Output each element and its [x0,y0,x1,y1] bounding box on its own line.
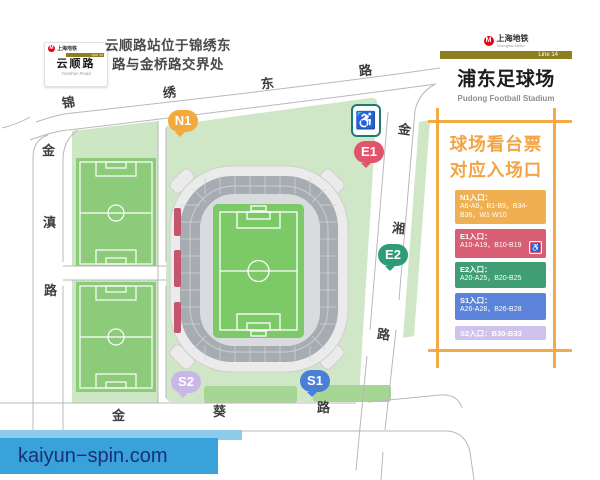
road-label-jinxiu-4: 路 [358,63,373,78]
legend-entry-s2: S2入口：B30-B33 [455,326,546,340]
road-label-jinkui-2: 葵 [213,405,226,419]
map-header: M 上海地铁 Shanghai Metro Line 14 浦东足球场 Pudo… [440,34,572,103]
road-label-jinkui-1: 金 [112,409,125,423]
watermark-text: kaiyun−spin.com [18,445,168,468]
legend-frame-top [428,120,572,123]
legend-entry-e1: E1入口： A10-A19，B10-B19 ♿ [455,229,546,258]
road-label-jindian-3: 路 [44,284,57,298]
metro-logo-text: 上海地铁 [57,45,77,52]
stadium-title-cn: 浦东足球场 [440,64,572,91]
metro-logo-text: 上海地铁 [497,34,529,43]
road-label-jinxiu-1: 锦 [61,95,76,111]
legend-entry-s1: S1入口： A26-A28，B26-B28 [455,293,546,320]
watermark: kaiyun−spin.com [0,438,218,474]
road-label-jinxiu-3: 东 [260,76,275,91]
road-label-jinxiang-1: 金 [397,122,412,138]
road-label-jindian-2: 滇 [43,216,56,230]
shanghai-metro-logo-icon: M [48,45,55,52]
gate-s1-marker: S1 [300,370,330,392]
station-name-cn: 云顺路 [48,58,104,71]
road-label-jinxiang-2: 湘 [391,221,405,236]
stadium-title-en: Pudong Football Stadium [440,94,572,103]
legend-entry-e2: E2入口： A20-A25，B20-B25 [455,262,546,288]
legend-title: 球场看台票 对应入场口 [436,131,556,183]
station-location-note: 云顺路站位于锦绣东 路与金桥路交界处 [100,36,236,74]
gate-n1-marker: N1 [168,110,198,132]
stadium-pitch [213,204,304,338]
gate-e2-marker: E2 [378,244,408,266]
line-14-badge: Line 14 [440,51,572,59]
gate-s2-marker: S2 [171,371,201,393]
road-label-jinkui-3: 路 [317,401,330,415]
wheelchair-accessible-entrance-icon: ♿ [351,104,381,137]
road-label-jinxiu-2: 绣 [162,85,177,101]
note-line2: 路与金桥路交界处 [100,55,236,74]
metro-logo-sub: Shanghai Metro [497,43,529,48]
road-label-jindian-1: 金 [42,144,55,158]
note-line1: 云顺路站位于锦绣东 [100,36,236,55]
stadium [168,166,348,372]
road-label-jinxiang-3: 路 [376,327,390,342]
station-name-en: Yunshun Road [48,71,104,77]
gate-e1-marker: E1 [354,141,384,163]
shanghai-metro-logo-icon: M [484,36,494,46]
station-line-badge: Line 14 [66,53,104,57]
stadium-map-page: M 上海地铁 Line 14 云顺路 Yunshun Road 云顺路站位于锦绣… [0,0,600,480]
wheelchair-icon: ♿ [529,241,542,254]
west-section-strips [174,208,181,333]
legend-entry-n1: N1入口： A6-A9，B1-B9，B34- B36，W1-W10 [455,190,546,224]
legend-frame-bottom [428,349,572,352]
metro-station-sign: M 上海地铁 Line 14 云顺路 Yunshun Road [44,42,108,87]
training-pitches [63,158,166,392]
